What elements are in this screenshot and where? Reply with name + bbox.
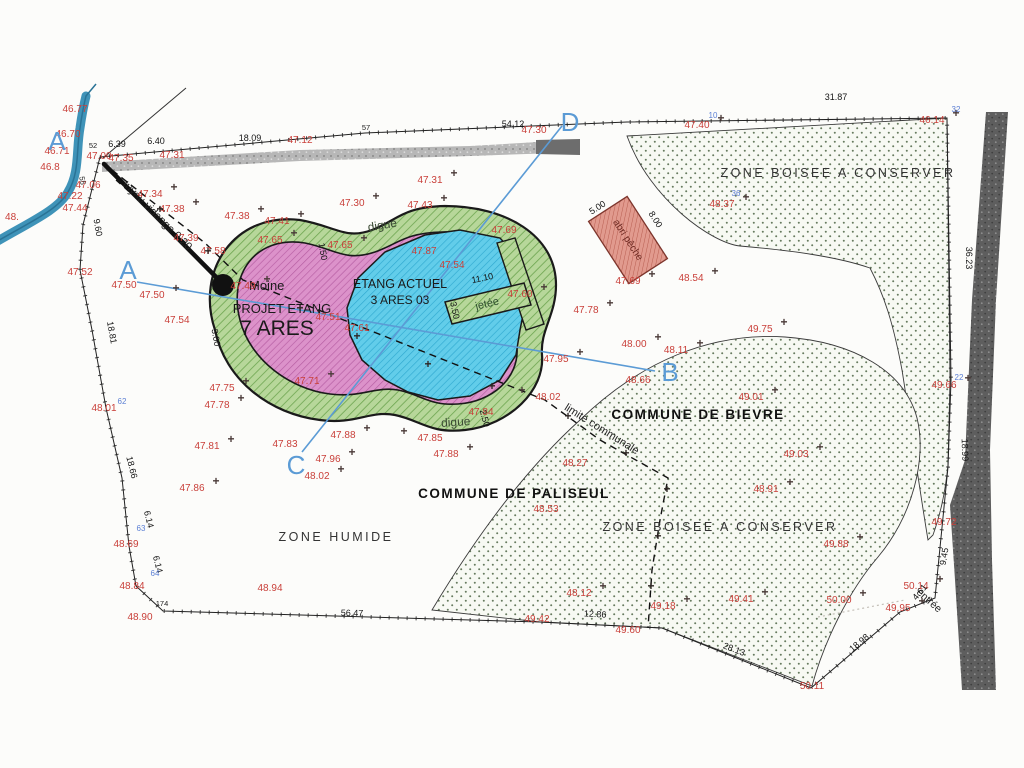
elevation-cross: + (606, 296, 613, 310)
spot-elevation: 47.41 (264, 216, 289, 227)
spot-elevation: 46.8 (40, 162, 60, 173)
point-id-blue: 10 (709, 111, 718, 120)
elevation-cross: + (363, 421, 370, 435)
elevation-cross: + (683, 592, 690, 606)
site-plan-drawing: abri pêche tuyau vidange 0.20 limite com… (0, 0, 1024, 768)
spot-elevation: 47.43 (407, 200, 432, 211)
spot-elevation: 50.11 (800, 681, 825, 692)
elevation-cross: + (237, 391, 244, 405)
spot-elevation: 49.18 (650, 601, 675, 612)
dimension-label: 6.40 (147, 136, 165, 146)
current-pond-label-1: ETANG ACTUEL (353, 277, 447, 291)
spot-elevation: 47.60 (507, 289, 532, 300)
dimension-label: 18.99 (960, 438, 971, 461)
point-id-black: 55 (77, 176, 87, 186)
section-letter: D (561, 107, 580, 137)
elevation-cross: + (290, 226, 297, 240)
boundary-cross: + (647, 579, 654, 593)
elevation-cross: + (372, 189, 379, 203)
spot-elevation: 47.44 (62, 203, 87, 214)
elevation-cross: + (242, 374, 249, 388)
spot-elevation: 47.88 (433, 449, 458, 460)
point-id-black: 174 (156, 599, 169, 608)
spot-elevation: 47.69 (615, 276, 640, 287)
spot-elevation: 47.78 (204, 400, 229, 411)
elevation-cross: + (936, 572, 943, 586)
spot-elevation: 48.12 (566, 588, 591, 599)
section-letter: A (48, 126, 66, 156)
dike-bottom-label: digue (441, 414, 472, 430)
spot-elevation: 48.69 (113, 539, 138, 550)
dimension-label: 36.23 (964, 247, 974, 270)
scanned-survey-plan: abri pêche tuyau vidange 0.20 limite com… (0, 0, 1024, 768)
elevation-cross: + (696, 336, 703, 350)
spot-elevation: 49.41 (728, 594, 753, 605)
zone-humide-label: ZONE HUMIDE (279, 530, 394, 544)
boundary-cross: + (424, 357, 431, 371)
top-road-end (536, 139, 580, 155)
elevation-cross: + (859, 586, 866, 600)
boundary-cross: + (654, 529, 661, 543)
boundary-cross: + (353, 329, 360, 343)
spot-elevation: 50.00 (826, 595, 851, 606)
spot-elevation: 47.34 (137, 189, 162, 200)
spot-elevation: 47.12 (287, 135, 312, 146)
elevation-cross: + (360, 231, 367, 245)
spot-elevation: 47.81 (194, 441, 219, 452)
spot-elevation: 48.00 (621, 339, 646, 350)
spot-elevation: 49.95 (885, 603, 910, 614)
spot-elevation: 48.37 (709, 199, 734, 210)
dimension-label: 6.39 (108, 139, 126, 149)
spot-elevation: 48.27 (562, 458, 587, 469)
elevation-cross: + (263, 272, 270, 286)
elevation-cross: + (540, 280, 547, 294)
elevation-cross: + (771, 383, 778, 397)
spot-elevation: 47.87 (411, 246, 436, 257)
elevation-cross: + (742, 190, 749, 204)
elevation-cross: + (717, 111, 724, 125)
elevation-cross: + (466, 440, 473, 454)
project-pond-label-2: 7 ARES (240, 317, 314, 340)
boundary-cross: + (296, 301, 303, 315)
spot-elevation: 48.11 (664, 345, 689, 356)
boundary-cross: + (663, 482, 670, 496)
elevation-cross: + (348, 445, 355, 459)
spot-elevation: 48.53 (533, 504, 558, 515)
spot-elevation: 48.94 (257, 583, 282, 594)
elevation-cross: + (440, 191, 447, 205)
spot-elevation: 47.50 (139, 290, 164, 301)
spot-elevation: 47.95 (543, 354, 568, 365)
boundary-cross: + (564, 409, 571, 423)
spot-elevation: 49.75 (747, 324, 772, 335)
spot-elevation: 47.49 (230, 281, 255, 292)
spot-elevation: 47.39 (173, 233, 198, 244)
spot-elevation: 47.40 (684, 120, 709, 131)
spot-elevation: 47.88 (330, 430, 355, 441)
section-letter: C (287, 450, 306, 480)
commune-bievre-label: COMMUNE DE BIEVRE (611, 407, 784, 422)
spot-elevation: 47.83 (272, 439, 297, 450)
spot-elevation: 47.38 (224, 211, 249, 222)
spot-elevation: 47.85 (417, 433, 442, 444)
elevation-cross: + (170, 180, 177, 194)
spot-elevation: 49.42 (524, 614, 549, 625)
spot-elevation: 46.14 (919, 115, 944, 126)
spot-elevation: 47.96 (315, 454, 340, 465)
elevation-cross: + (257, 202, 264, 216)
elevation-cross: + (711, 264, 718, 278)
elevation-cross: + (212, 474, 219, 488)
elevation-cross: + (964, 371, 971, 385)
section-letter: B (661, 357, 678, 387)
elevation-cross: + (786, 475, 793, 489)
elevation-cross: + (816, 440, 823, 454)
spot-elevation: 48.84 (119, 581, 144, 592)
elevation-cross: + (856, 530, 863, 544)
dimension-label: 54.12 (502, 119, 525, 129)
point-id-blue: 22 (955, 373, 964, 382)
spot-elevation: 49.72 (931, 517, 956, 528)
spot-elevation: 47.30 (521, 125, 546, 136)
elevation-cross: + (518, 383, 525, 397)
spot-elevation: 47.75 (209, 383, 234, 394)
spot-elevation: 49.88 (823, 539, 848, 550)
zone-boisee-south-label: ZONE BOISEE A CONSERVER (602, 520, 837, 534)
elevation-cross: + (400, 424, 407, 438)
spot-elevation: 46.77 (62, 104, 87, 115)
boundary-cross: + (622, 446, 629, 460)
spot-elevation: 48.02 (535, 392, 560, 403)
spot-elevation: 47.86 (179, 483, 204, 494)
point-id-black: 52 (89, 141, 97, 150)
commune-paliseul-label: COMMUNE DE PALISEUL (418, 486, 610, 501)
elevation-cross: + (654, 330, 661, 344)
boundary-cross: + (488, 379, 495, 393)
section-letter: A (119, 255, 137, 285)
spot-elevation: 47.30 (339, 198, 364, 209)
spot-elevation: 47.52 (67, 267, 92, 278)
spot-elevation: 47.78 (573, 305, 598, 316)
zone-boisee-north-label: ZONE BOISEE A CONSERVER (720, 166, 955, 180)
dimension-label: 12.86 (584, 608, 607, 619)
spot-elevation: 47.69 (491, 225, 516, 236)
elevation-cross: + (576, 345, 583, 359)
spot-elevation: 47.65 (327, 240, 352, 251)
spot-elevation: 49.60 (615, 625, 640, 636)
spot-elevation: 47.31 (159, 150, 184, 161)
dimension-label: 31.87 (825, 92, 848, 102)
spot-elevation: 47.51 (315, 312, 340, 323)
point-id-black: 57 (362, 123, 370, 132)
elevation-cross: + (192, 195, 199, 209)
point-id-blue: 63 (137, 524, 146, 533)
point-id-blue: 64 (151, 569, 160, 578)
elevation-cross: + (780, 315, 787, 329)
spot-elevation: 48.66 (625, 375, 650, 386)
elevation-cross: + (227, 432, 234, 446)
elevation-cross: + (327, 367, 334, 381)
spot-elevation: 47.54 (439, 260, 464, 271)
point-id-blue: 62 (118, 397, 127, 406)
spot-elevation: 47.71 (294, 376, 319, 387)
elevation-cross: + (172, 281, 179, 295)
spot-elevation: 47.65 (257, 235, 282, 246)
spot-elevation: 47.35 (108, 153, 133, 164)
spot-elevation: 48.90 (127, 612, 152, 623)
point-id-blue: 36 (732, 189, 741, 198)
spot-elevation: 47.54 (164, 315, 189, 326)
spot-elevation: 48.91 (753, 484, 778, 495)
spot-elevation: 48.01 (91, 403, 116, 414)
elevation-cross: + (761, 585, 768, 599)
spot-elevation: 48. (5, 212, 19, 223)
spot-elevation: 49.03 (783, 449, 808, 460)
elevation-cross: + (450, 166, 457, 180)
elevation-cross: + (599, 579, 606, 593)
dimension-label: 56.47 (341, 608, 364, 618)
dimension-label: 18.09 (239, 133, 262, 143)
current-pond-label-2: 3 ARES 03 (371, 293, 430, 307)
boundary-cross: + (156, 202, 163, 216)
elevation-cross: + (297, 207, 304, 221)
spot-elevation: 49.01 (738, 392, 763, 403)
elevation-cross: + (648, 267, 655, 281)
point-id-blue: 32 (952, 105, 961, 114)
spot-elevation: 47.31 (417, 175, 442, 186)
boundary-cross: + (204, 244, 211, 258)
spot-elevation: 48.54 (678, 273, 703, 284)
spot-elevation: 48.02 (304, 471, 329, 482)
spot-elevation: 49.66 (931, 380, 956, 391)
spot-elevation: 47.22 (57, 191, 82, 202)
